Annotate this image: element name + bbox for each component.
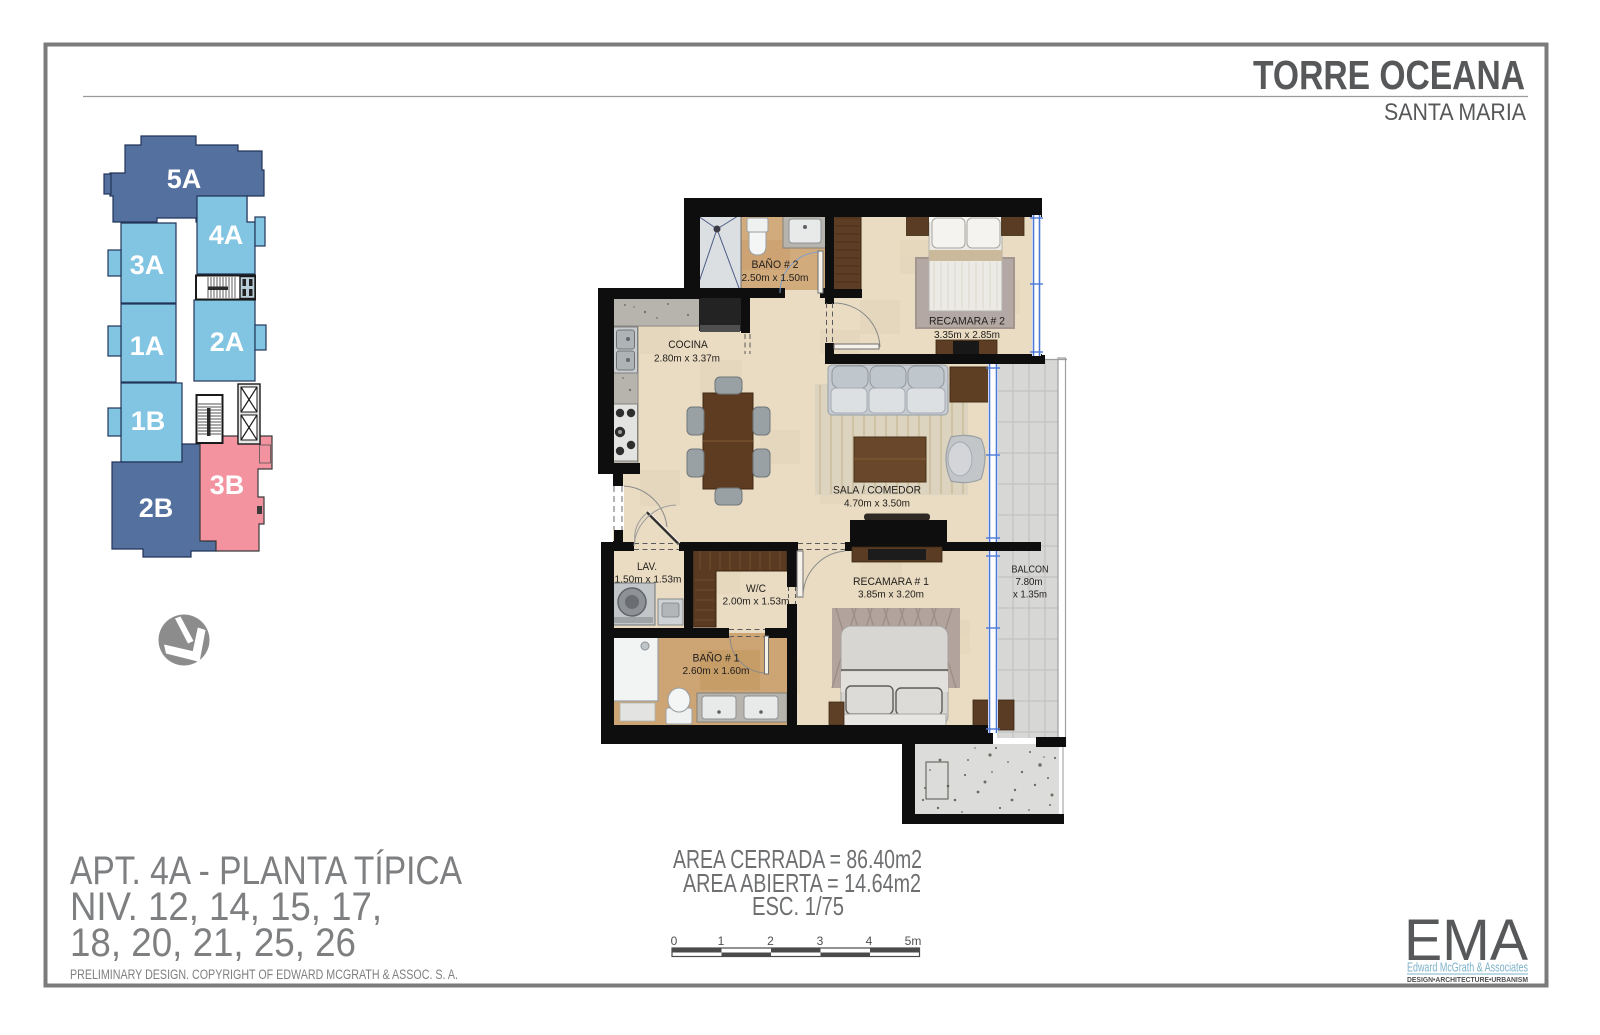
svg-text:RECAMARA # 1: RECAMARA # 1 — [853, 576, 929, 588]
svg-text:2: 2 — [767, 934, 774, 948]
svg-text:3A: 3A — [130, 250, 165, 280]
svg-text:5A: 5A — [167, 164, 202, 194]
svg-text:DESIGN•ARCHITECTURE•URBANISM: DESIGN•ARCHITECTURE•URBANISM — [1407, 975, 1528, 984]
svg-text:BAÑO # 1: BAÑO # 1 — [693, 652, 740, 665]
svg-text:2B: 2B — [139, 493, 174, 523]
svg-text:4: 4 — [866, 934, 873, 948]
svg-text:4.70m x 3.50m: 4.70m x 3.50m — [844, 498, 910, 510]
svg-text:1B: 1B — [131, 406, 166, 436]
svg-text:ESC. 1/75: ESC. 1/75 — [752, 891, 844, 921]
svg-text:3B: 3B — [210, 470, 245, 500]
svg-text:W/C: W/C — [746, 583, 766, 595]
svg-text:1: 1 — [718, 934, 725, 948]
svg-text:3.35m x 2.85m: 3.35m x 2.85m — [934, 329, 1000, 341]
svg-text:Edward McGrath & Associates: Edward McGrath & Associates — [1407, 960, 1528, 975]
svg-text:2A: 2A — [210, 327, 245, 357]
svg-text:1A: 1A — [130, 331, 165, 361]
svg-text:COCINA: COCINA — [668, 339, 708, 351]
svg-text:BAÑO # 2: BAÑO # 2 — [752, 258, 799, 271]
svg-text:3.85m x 3.20m: 3.85m x 3.20m — [858, 589, 924, 601]
svg-text:TORRE OCEANA: TORRE OCEANA — [1253, 52, 1525, 98]
svg-text:4A: 4A — [209, 220, 244, 250]
svg-text:x 1.35m: x 1.35m — [1013, 589, 1047, 601]
svg-text:PRELIMINARY DESIGN. COPYRIGHT: PRELIMINARY DESIGN. COPYRIGHT OF EDWARD … — [70, 967, 458, 982]
svg-text:LAV.: LAV. — [637, 561, 657, 573]
svg-text:0: 0 — [671, 934, 678, 948]
svg-text:7.80m: 7.80m — [1016, 576, 1043, 588]
svg-text:2.80m x 3.37m: 2.80m x 3.37m — [654, 353, 720, 365]
svg-text:2.60m x 1.60m: 2.60m x 1.60m — [683, 665, 750, 677]
svg-text:2.50m x 1.50m: 2.50m x 1.50m — [742, 272, 809, 284]
svg-text:18, 20, 21, 25, 26: 18, 20, 21, 25, 26 — [70, 921, 356, 965]
svg-text:RECAMARA # 2: RECAMARA # 2 — [929, 316, 1005, 328]
svg-text:SANTA MARIA: SANTA MARIA — [1384, 99, 1526, 126]
svg-text:3: 3 — [817, 934, 824, 948]
svg-text:5m: 5m — [905, 934, 922, 948]
svg-text:BALCON: BALCON — [1012, 564, 1049, 576]
svg-text:2.00m x 1.53m: 2.00m x 1.53m — [723, 596, 790, 608]
svg-text:SALA / COMEDOR: SALA / COMEDOR — [833, 485, 921, 497]
svg-text:1.50m x 1.53m: 1.50m x 1.53m — [615, 574, 682, 586]
